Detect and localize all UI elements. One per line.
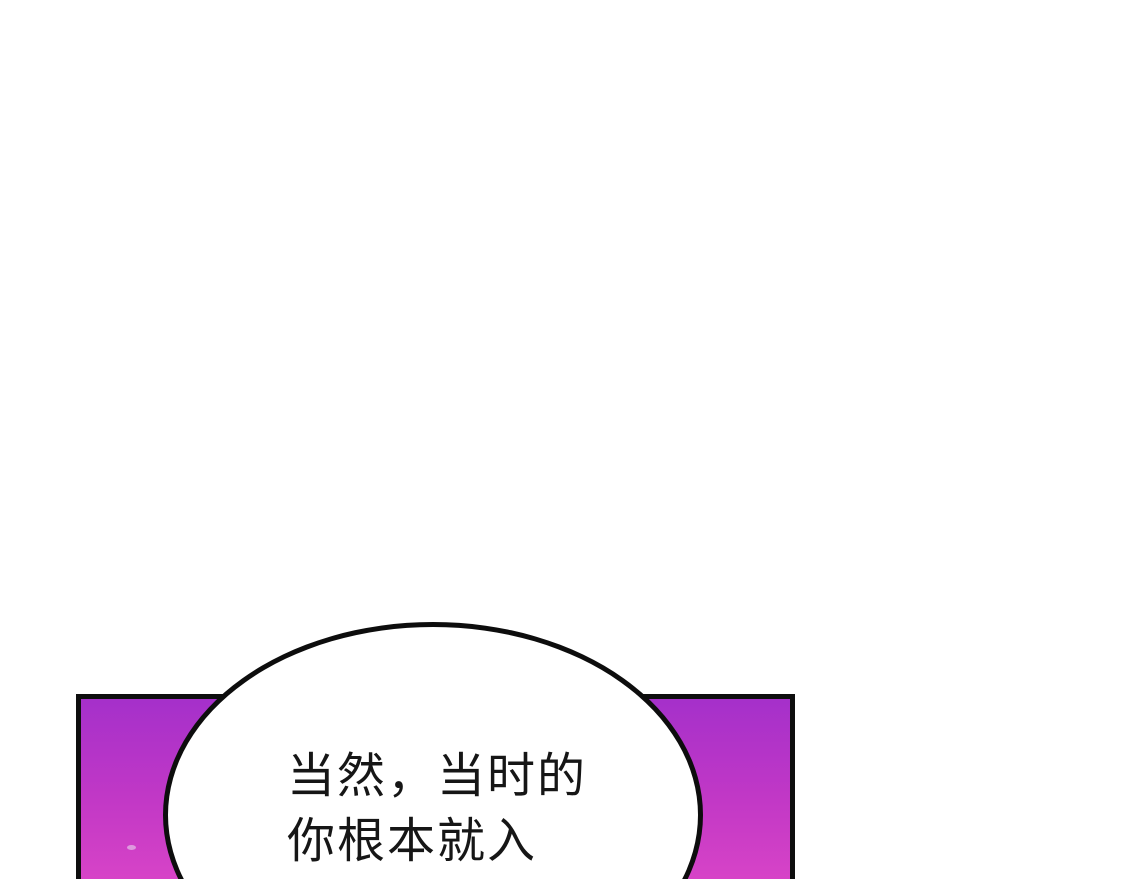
speech-text-line-2: 你根本就入 bbox=[287, 809, 587, 874]
speech-text-line-1: 当然，当时的 bbox=[287, 744, 587, 809]
sparkle-dot bbox=[127, 845, 136, 850]
speech-bubble-text: 当然，当时的 你根本就入 bbox=[287, 744, 587, 874]
comic-page: 当然，当时的 你根本就入 bbox=[0, 0, 1125, 879]
